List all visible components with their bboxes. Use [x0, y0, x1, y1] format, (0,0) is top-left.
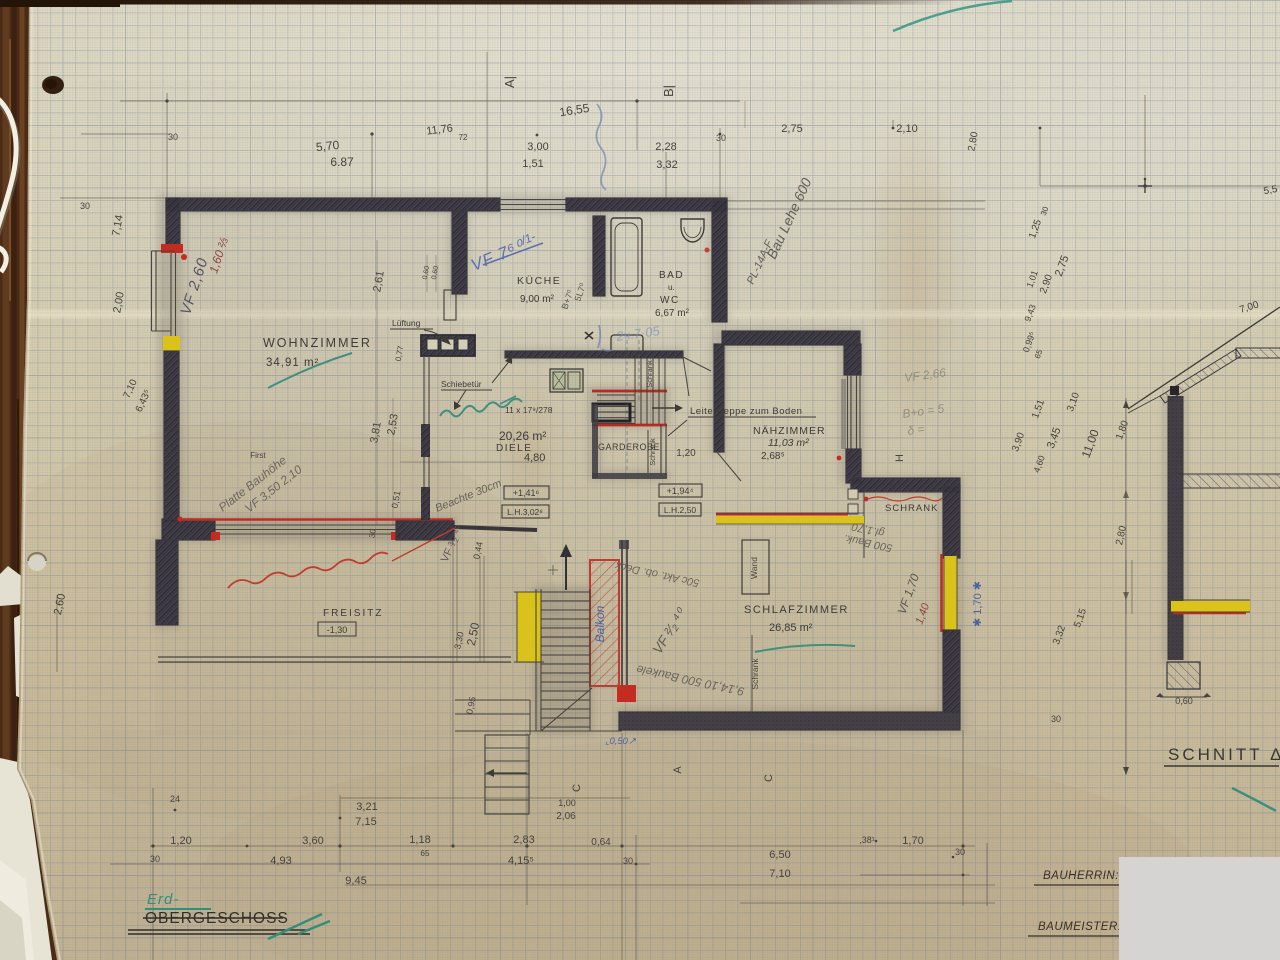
svg-text:30: 30: [80, 201, 90, 211]
